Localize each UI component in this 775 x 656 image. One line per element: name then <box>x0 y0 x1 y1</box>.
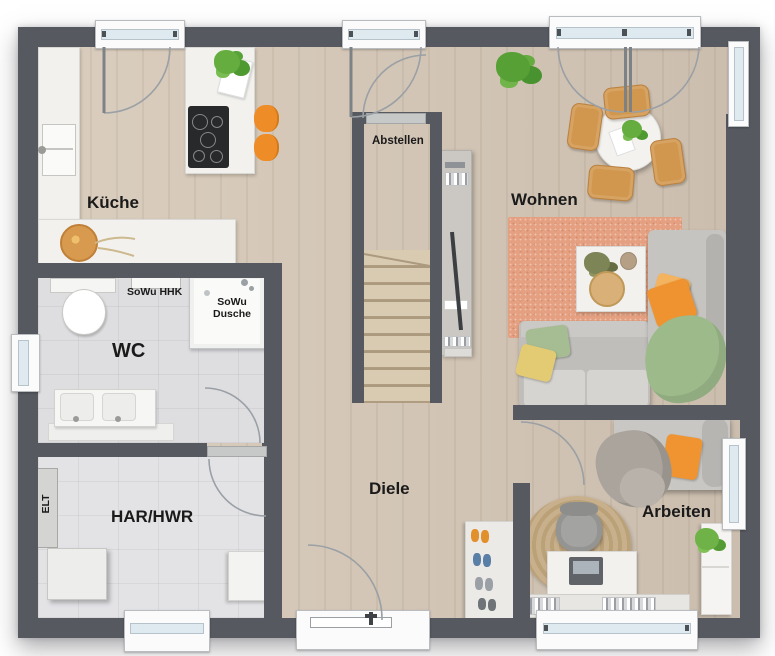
entry-door-frame <box>296 610 430 650</box>
basin-faucet <box>73 416 79 422</box>
kitchen-sink <box>42 124 76 176</box>
shoes <box>475 577 483 590</box>
shelf-item <box>444 300 468 310</box>
wall-kitchen-south <box>18 263 282 278</box>
kitchen-sink-divider <box>44 148 73 150</box>
storage-door-leaf <box>366 113 426 124</box>
room-label-living: Wohnen <box>511 190 578 210</box>
window-glass <box>101 29 179 40</box>
kitchen-plant <box>214 50 240 74</box>
window-living-double-door <box>549 16 701 49</box>
window-kitchen-top <box>95 20 185 49</box>
label-shower-line2: Dusche <box>213 308 251 320</box>
basin-faucet <box>115 416 121 422</box>
bar-stool <box>254 134 279 161</box>
shelf-item <box>444 348 472 357</box>
window-office-bottom <box>536 610 698 650</box>
shoes <box>471 529 479 542</box>
office-chair-back <box>560 502 598 516</box>
room-label-storage: Abstellen <box>372 135 424 147</box>
entry-door-leaf <box>310 617 392 628</box>
shoes <box>473 553 481 566</box>
window-cap <box>687 29 691 36</box>
room-label-kitchen: Küche <box>87 193 139 213</box>
label-shower-line1: SoWu <box>217 296 247 308</box>
label-electrical: ELT <box>40 482 52 526</box>
laptop-keys <box>573 561 599 574</box>
window-cap <box>685 625 689 631</box>
washer <box>47 548 107 600</box>
window-cap <box>557 29 561 36</box>
cooktop <box>188 106 229 168</box>
label-shower: SoWu Dusche <box>200 296 264 320</box>
room-label-utility: HAR/HWR <box>111 507 193 527</box>
sofa-cushion <box>586 369 649 407</box>
window-living-right <box>728 41 749 127</box>
corner-plant <box>496 52 530 82</box>
table-plant <box>622 120 642 138</box>
window-office-right <box>722 438 746 530</box>
label-wall-heater: SoWu HHK <box>127 286 182 298</box>
window-wc-left <box>11 334 40 392</box>
entry-door-handle-stem <box>369 612 373 625</box>
bar-stool <box>254 105 279 132</box>
wall-storage-east <box>430 124 442 403</box>
window-cap <box>173 31 177 37</box>
cabinet-divider <box>702 566 729 568</box>
window-cap <box>414 31 418 37</box>
staircase <box>364 250 430 403</box>
window-hall-top <box>342 20 426 49</box>
burner <box>211 116 223 128</box>
shower-faucet <box>241 279 248 286</box>
shelf-item <box>445 162 465 168</box>
dining-chair <box>602 84 651 121</box>
wall-storage-west <box>352 112 364 403</box>
vase <box>620 252 637 270</box>
window-glass <box>734 47 744 121</box>
window-glass <box>130 623 204 634</box>
window-mullion <box>622 29 627 36</box>
wc-utility-door-leaf <box>207 446 267 457</box>
toilet-bowl <box>62 289 106 335</box>
window-glass <box>18 340 29 386</box>
window-glass <box>543 623 691 634</box>
burner <box>200 132 216 148</box>
burner <box>210 150 223 163</box>
dining-chair <box>587 164 636 202</box>
shelf-books <box>444 336 471 347</box>
tray <box>589 271 625 307</box>
window-glass <box>729 445 739 523</box>
burner <box>193 150 205 162</box>
burner <box>192 114 208 130</box>
wall-right-mid <box>726 114 760 418</box>
window-glass <box>348 29 420 40</box>
cabinet-plant <box>695 528 719 550</box>
window-cap <box>349 31 353 37</box>
dining-chair <box>566 102 604 152</box>
shelf-books <box>445 172 469 186</box>
shoes <box>478 598 486 610</box>
wall-left <box>18 27 38 638</box>
room-label-wc: WC <box>112 340 145 363</box>
window-cap <box>102 31 106 37</box>
wall-living-south <box>513 405 760 420</box>
dining-chair <box>649 137 687 187</box>
wall-wc-utility <box>18 443 207 457</box>
kitchen-faucet <box>38 146 46 154</box>
wall-hall-east-lower <box>513 483 530 618</box>
fruit-bowl <box>60 224 98 262</box>
wall-wc-east <box>264 263 282 618</box>
window-cap <box>544 625 548 631</box>
room-label-office: Arbeiten <box>642 502 711 522</box>
room-label-hall: Diele <box>369 479 410 499</box>
floor-plan: Küche Abstellen Wohnen WC SoWu HHK SoWu … <box>0 0 775 656</box>
window-utility-bottom <box>124 610 210 652</box>
